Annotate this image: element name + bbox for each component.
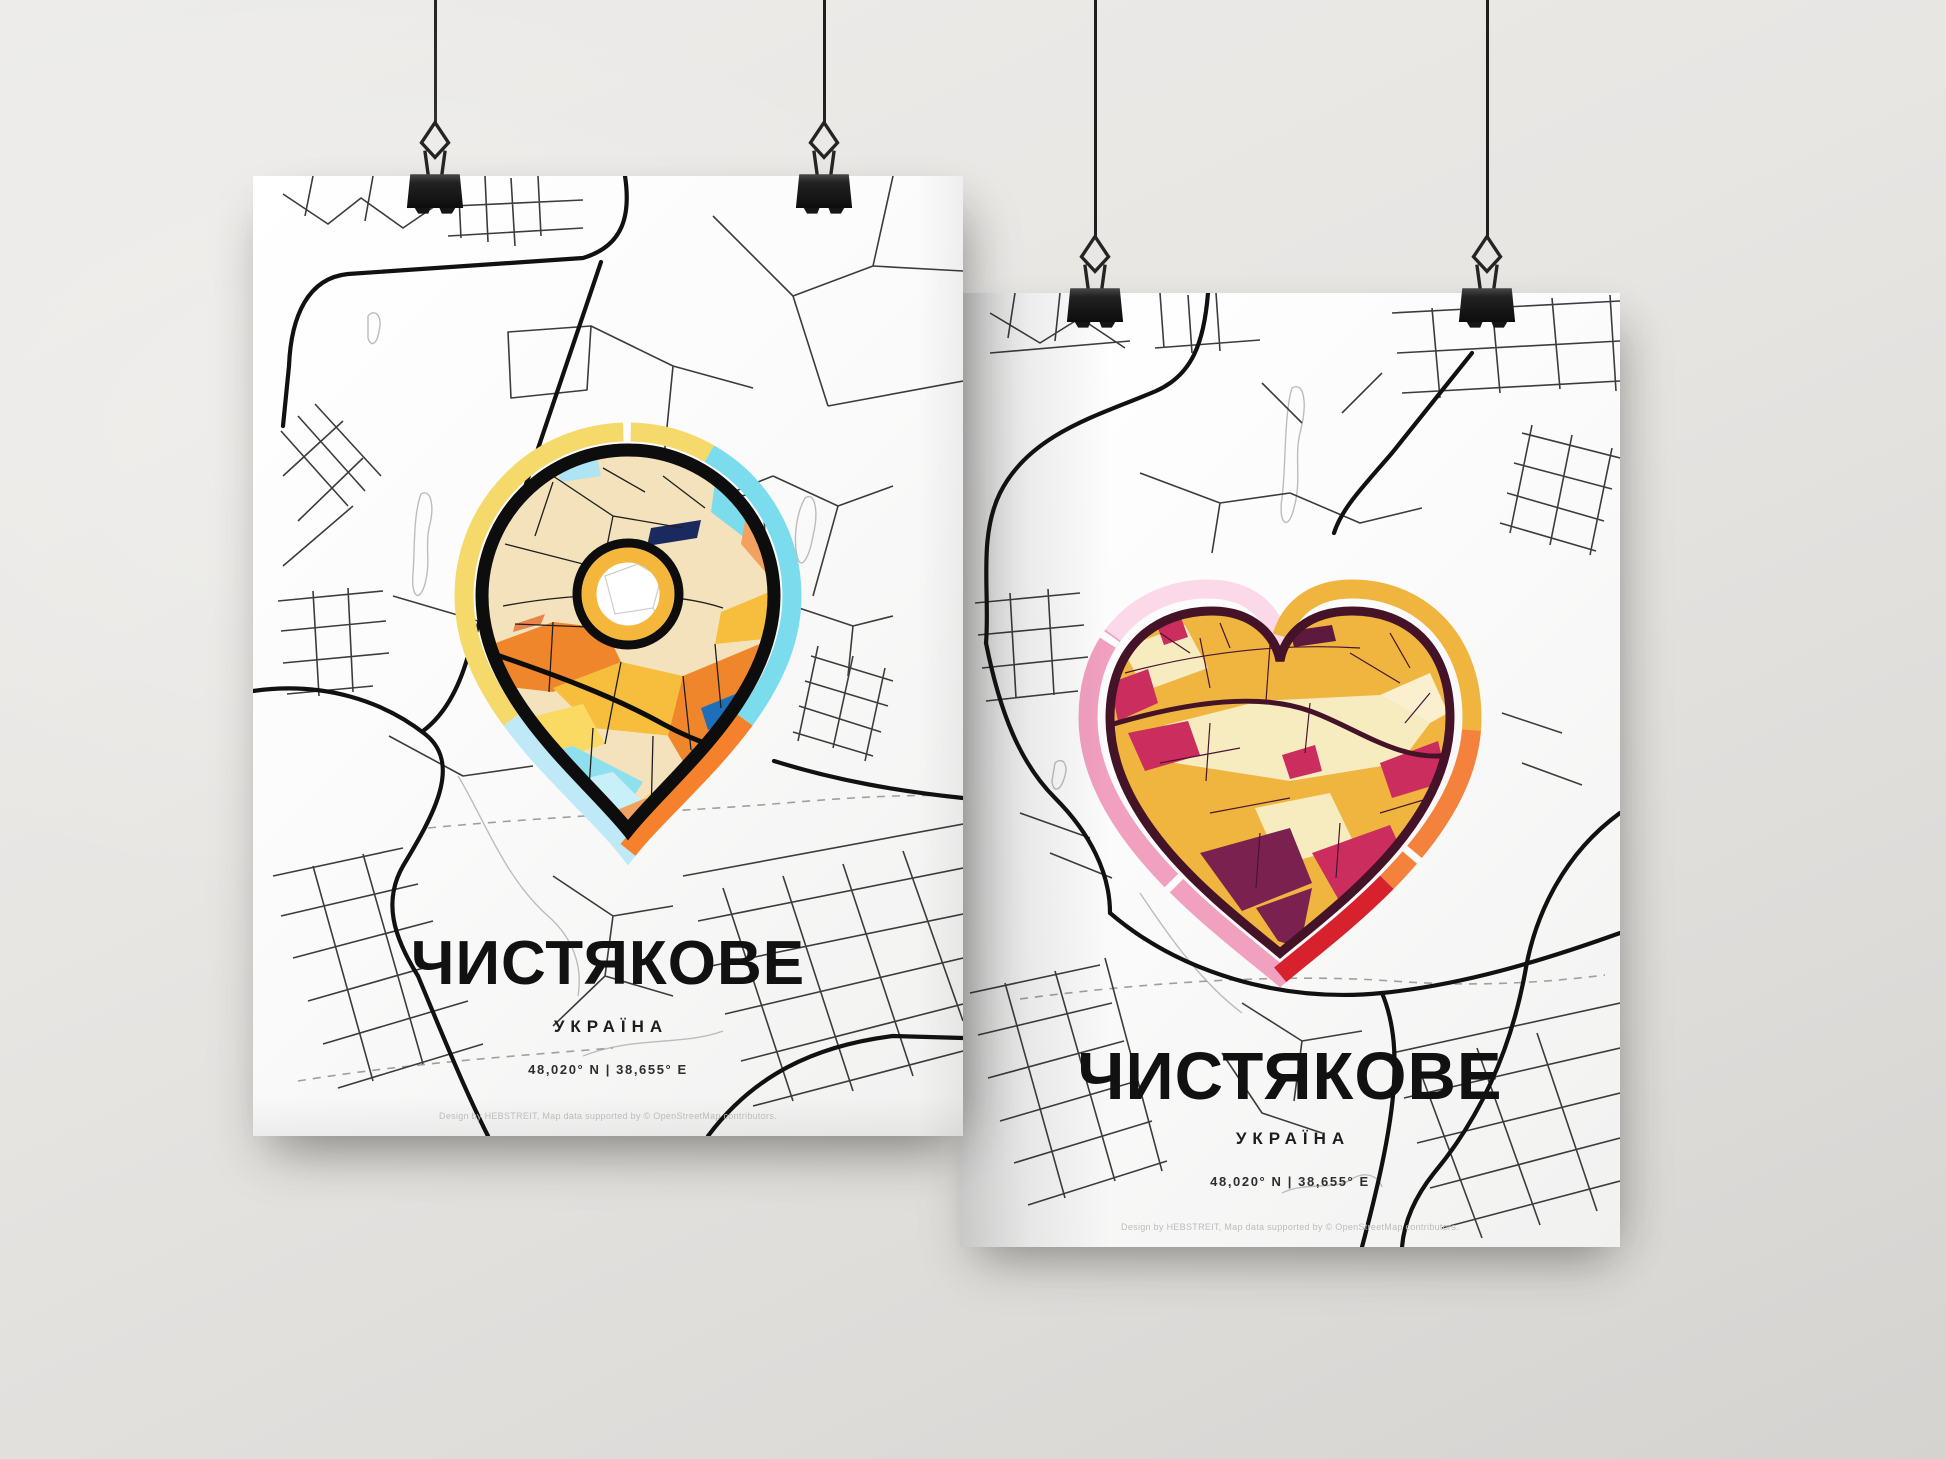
poster-title: ЧИСТЯКОВЕ (960, 1038, 1620, 1115)
poster-credit: Design by HEBSTREIT, Map data supported … (253, 1111, 963, 1121)
poster-credit: Design by HEBSTREIT, Map data supported … (960, 1222, 1620, 1232)
binder-clip-icon (1451, 234, 1523, 329)
poster-subtitle: УКРАЇНА (253, 1017, 963, 1037)
pin-center-ring (577, 543, 679, 645)
poster-coordinates: 48,020° N | 38,655° E (960, 1174, 1620, 1189)
poster-map-pin: ЧИСТЯКОВЕ УКРАЇНА 48,020° N | 38,655° E … (253, 176, 963, 1136)
hanging-string (434, 0, 437, 126)
binder-clip-icon (1059, 234, 1131, 329)
hanging-string (1094, 0, 1097, 238)
wall-background: ЧИСТЯКОВЕ УКРАЇНА 48,020° N | 38,655° E … (0, 0, 1946, 1459)
poster-title: ЧИСТЯКОВЕ (253, 928, 963, 999)
hanging-string (1486, 0, 1489, 238)
poster-coordinates: 48,020° N | 38,655° E (253, 1062, 963, 1077)
binder-clip-icon (399, 120, 471, 215)
binder-clip-icon (788, 120, 860, 215)
heart-icon (1088, 589, 1472, 975)
hanging-string (823, 0, 826, 126)
poster-subtitle: УКРАЇНА (960, 1129, 1620, 1149)
poster-heart: ЧИСТЯКОВЕ УКРАЇНА 48,020° N | 38,655° E … (960, 293, 1620, 1247)
